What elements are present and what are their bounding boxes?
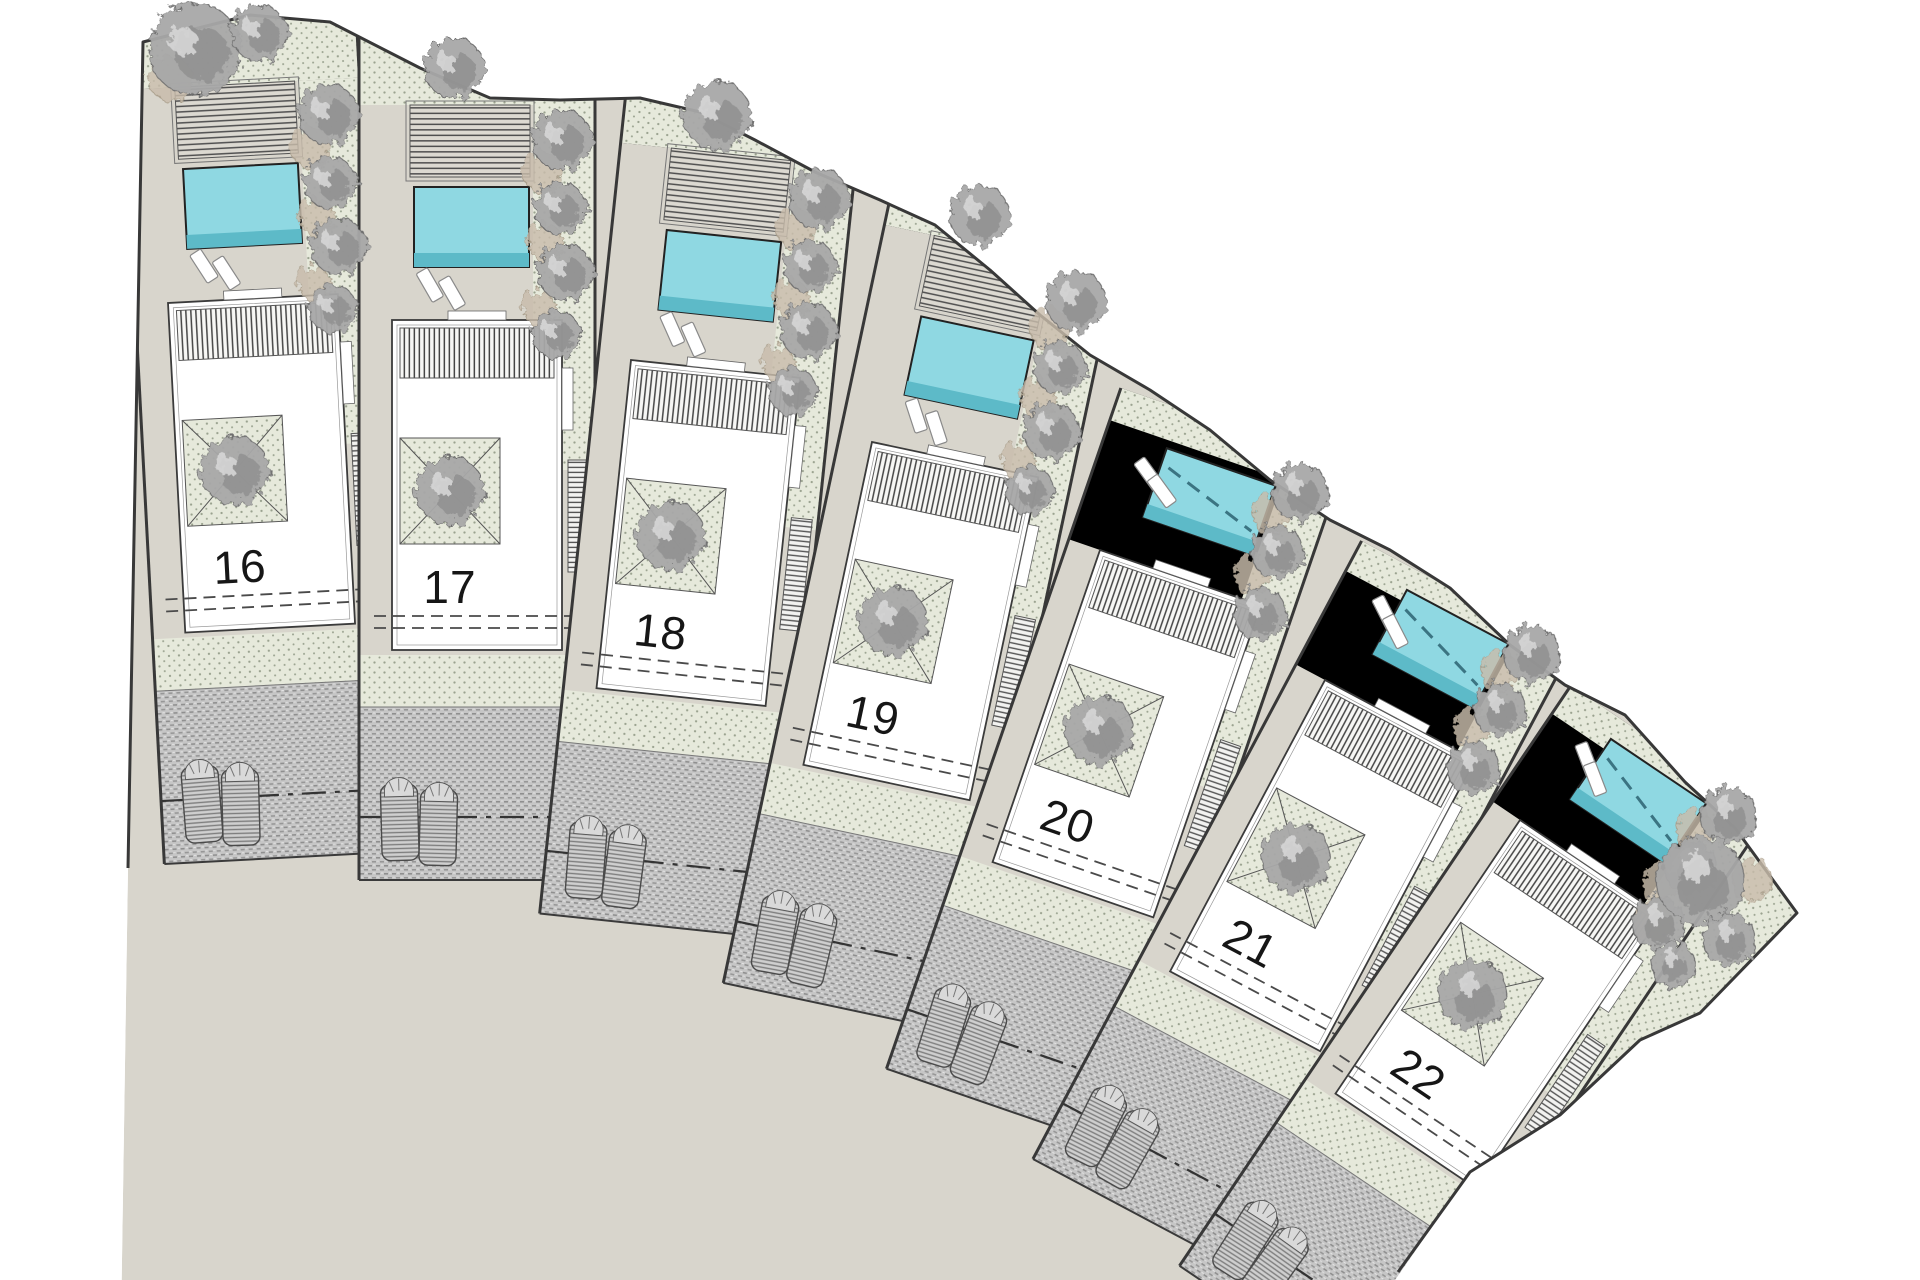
tree-icon [424,38,484,98]
garden-pergola-louvers [664,148,791,232]
side-projection [562,368,573,430]
plot-18-label: 18 [632,603,690,660]
plot-19-label: 19 [842,684,905,746]
terrace-planting-band [359,655,595,707]
parked-car [565,814,608,900]
roof-louver-strip [400,328,554,378]
site-plan-page: 16171819202122 [0,0,1920,1280]
tree-icon [416,457,484,525]
site-plan-canvas: 16171819202122 [0,0,1920,1280]
plot-16-label: 16 [212,539,268,594]
plot-17-label: 17 [423,561,476,613]
garden-pergola-louvers [410,105,530,177]
parked-car [221,762,260,846]
pool-deep-edge [414,253,529,267]
parked-car [380,777,419,861]
tree-icon [537,244,593,300]
roof-tab [448,311,506,320]
parked-car [419,782,458,866]
parked-car [180,758,223,844]
tree-icon [532,110,592,170]
tree-icon [532,310,580,358]
tree-icon [534,182,586,234]
